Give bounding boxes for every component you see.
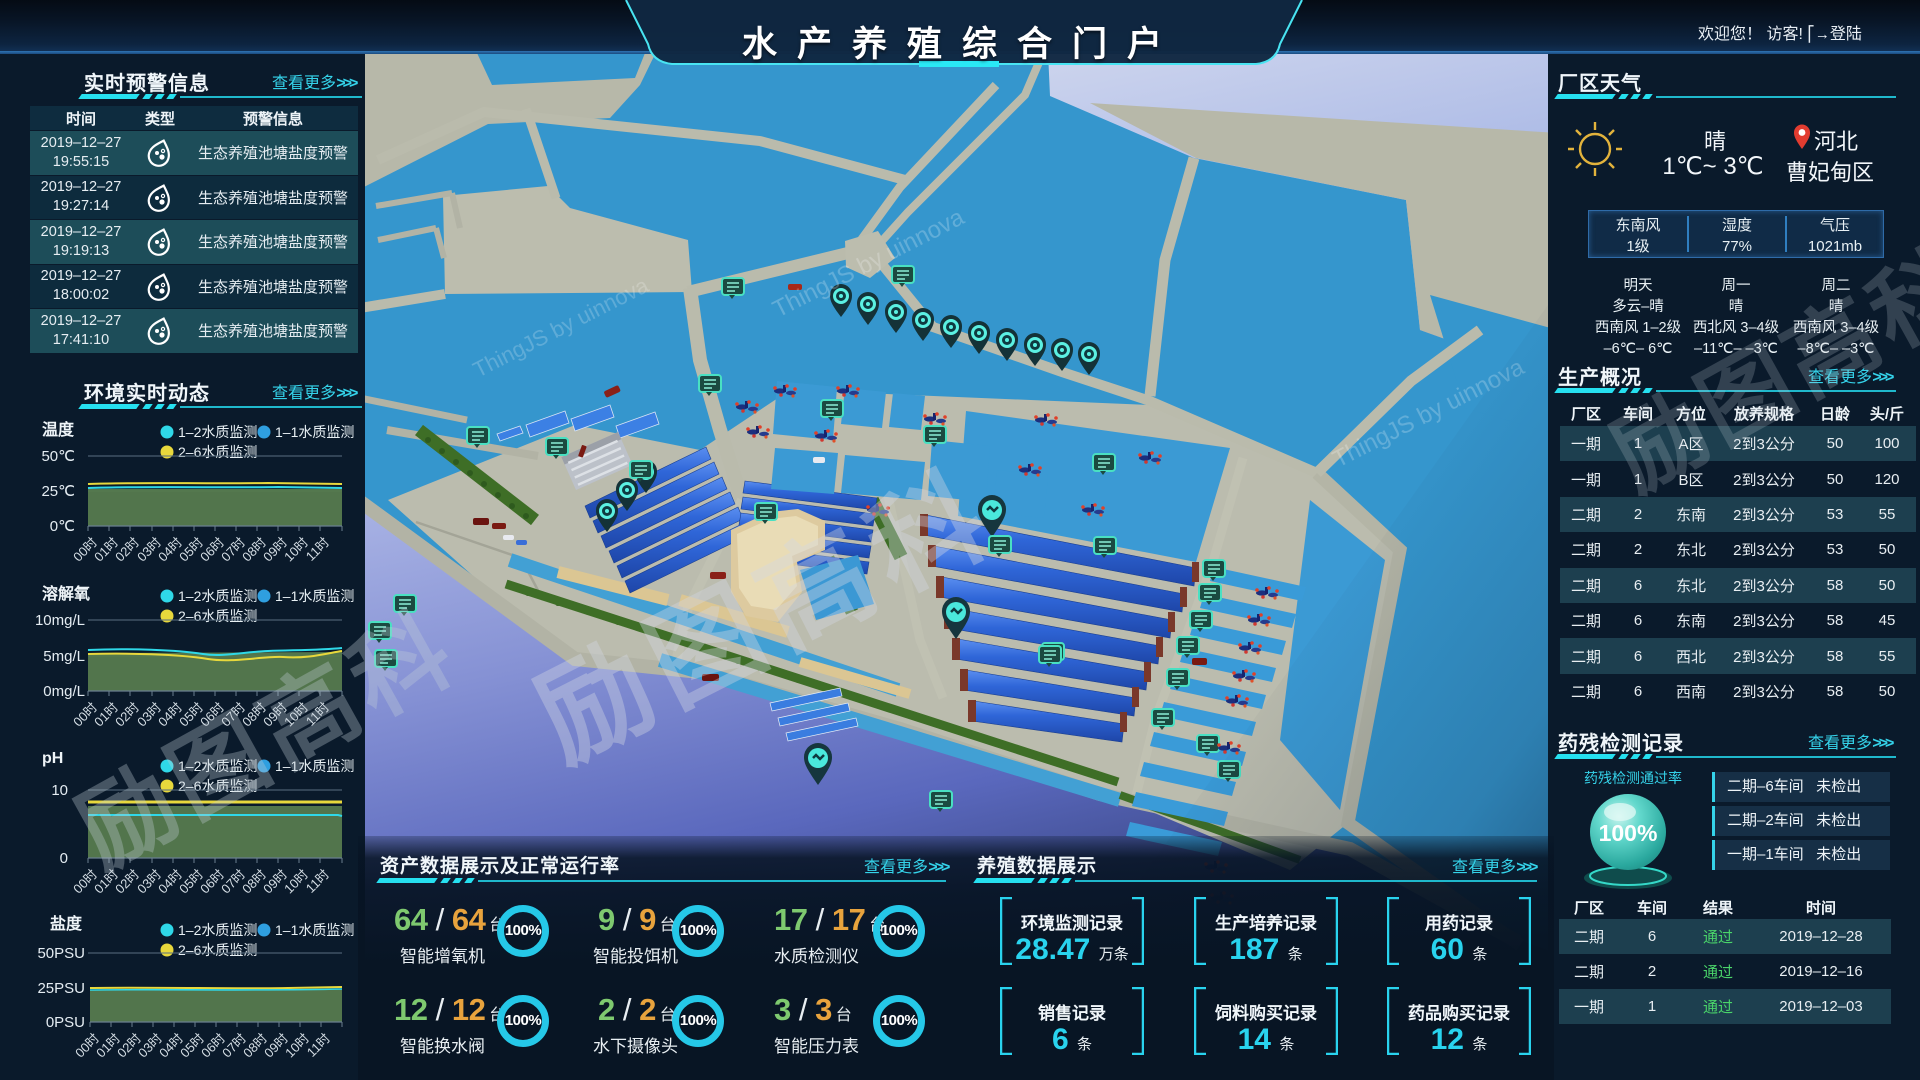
svg-text:0℃: 0℃ (50, 518, 75, 535)
svg-text:11时: 11时 (304, 1031, 333, 1060)
svg-text:1–2水质监测: 1–2水质监测 (178, 424, 257, 440)
svg-text:50PSU: 50PSU (37, 945, 85, 962)
svg-text:1–1水质监测: 1–1水质监测 (275, 758, 354, 774)
svg-text:1–2水质监测: 1–2水质监测 (178, 922, 257, 938)
svg-text:1–2水质监测: 1–2水质监测 (178, 588, 257, 604)
svg-text:100%: 100% (1599, 820, 1658, 846)
svg-text:10: 10 (51, 782, 68, 799)
svg-text:0: 0 (60, 850, 68, 867)
svg-text:25℃: 25℃ (41, 483, 75, 500)
svg-text:溶解氧: 溶解氧 (42, 584, 90, 603)
svg-text:25PSU: 25PSU (37, 980, 85, 997)
svg-text:1–1水质监测: 1–1水质监测 (275, 922, 354, 938)
svg-text:1–2水质监测: 1–2水质监测 (178, 758, 257, 774)
svg-text:10mg/L: 10mg/L (35, 612, 85, 629)
svg-text:1–1水质监测: 1–1水质监测 (275, 588, 354, 604)
svg-text:11时: 11时 (303, 867, 332, 896)
svg-text:1–1水质监测: 1–1水质监测 (275, 424, 354, 440)
svg-text:2–6水质监测: 2–6水质监测 (178, 942, 257, 958)
svg-text:5mg/L: 5mg/L (43, 648, 85, 665)
svg-text:pH: pH (42, 750, 63, 767)
svg-text:2–6水质监测: 2–6水质监测 (178, 778, 257, 794)
svg-text:11时: 11时 (303, 535, 332, 564)
svg-text:2–6水质监测: 2–6水质监测 (178, 444, 257, 460)
svg-text:0mg/L: 0mg/L (43, 683, 85, 700)
svg-text:盐度: 盐度 (50, 915, 83, 933)
svg-text:温度: 温度 (41, 420, 75, 439)
svg-text:50℃: 50℃ (41, 448, 75, 465)
svg-text:0PSU: 0PSU (46, 1014, 85, 1031)
svg-text:2–6水质监测: 2–6水质监测 (178, 608, 257, 624)
svg-text:11时: 11时 (303, 700, 332, 729)
